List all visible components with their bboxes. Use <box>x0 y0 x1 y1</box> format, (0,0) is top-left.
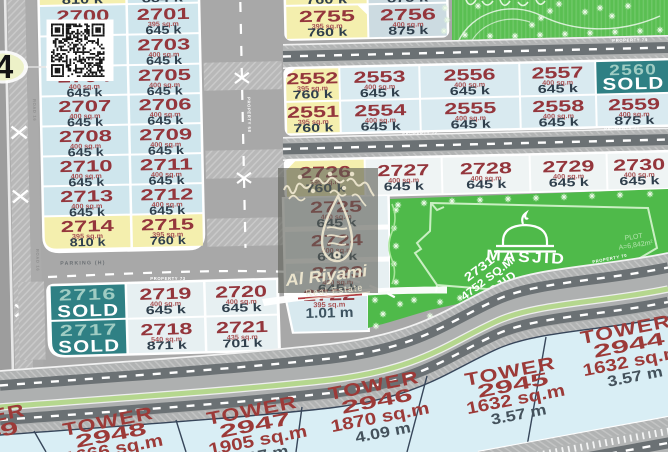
svg-text:PROPERTY 71: PROPERTY 71 <box>604 126 640 132</box>
svg-text:645 k: 645 k <box>549 177 590 190</box>
svg-text:875 k: 875 k <box>387 0 428 5</box>
svg-text:SOLD: SOLD <box>58 336 121 357</box>
svg-text:645 k: 645 k <box>450 85 491 98</box>
svg-text:760 k: 760 k <box>307 27 348 40</box>
svg-text:645 k: 645 k <box>538 83 579 96</box>
svg-text:645 k: 645 k <box>221 302 262 315</box>
svg-text:645 k: 645 k <box>538 117 579 130</box>
svg-text:645 k: 645 k <box>146 304 187 317</box>
svg-text:ROAD 16: ROAD 16 <box>35 249 40 272</box>
svg-text:4: 4 <box>0 48 14 85</box>
svg-text:875 k: 875 k <box>388 25 429 38</box>
svg-text:760 k: 760 k <box>150 235 187 248</box>
svg-text:810 k: 810 k <box>70 237 107 250</box>
svg-text:810 k: 810 k <box>62 0 103 7</box>
svg-text:SOLD: SOLD <box>57 300 120 321</box>
svg-text:1.01 m: 1.01 m <box>305 304 353 321</box>
svg-text:PROPERTY 58: PROPERTY 58 <box>246 97 252 133</box>
svg-text:PROPERTY 72: PROPERTY 72 <box>402 130 438 136</box>
svg-text:760 k: 760 k <box>306 0 347 7</box>
svg-text:645 k: 645 k <box>361 121 402 134</box>
svg-text:645 k: 645 k <box>451 119 492 132</box>
svg-text:760 k: 760 k <box>293 122 334 135</box>
svg-text:760 k: 760 k <box>293 89 334 102</box>
svg-text:645 k: 645 k <box>466 179 507 192</box>
svg-text:PARKING (H): PARKING (H) <box>60 260 105 267</box>
svg-text:701 k: 701 k <box>222 337 263 350</box>
svg-text:PROPERTY 74: PROPERTY 74 <box>612 37 648 43</box>
svg-text:871 k: 871 k <box>147 340 188 353</box>
svg-text:884 k: 884 k <box>142 0 183 5</box>
svg-text:645 k: 645 k <box>384 181 425 194</box>
svg-text:645 k: 645 k <box>360 87 401 100</box>
svg-text:SOLD: SOLD <box>602 74 664 94</box>
svg-text:PROPERTY 73: PROPERTY 73 <box>150 276 185 281</box>
svg-text:ROAD 16: ROAD 16 <box>32 99 37 122</box>
svg-text:645 k: 645 k <box>619 175 660 188</box>
